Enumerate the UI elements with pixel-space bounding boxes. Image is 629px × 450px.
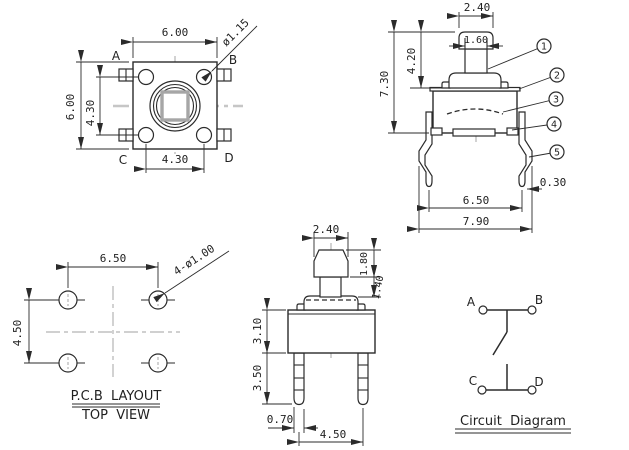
dim-leg-span: 6.50	[429, 190, 522, 212]
dim-text: 1.80	[359, 252, 370, 276]
dim-stem-height: 4.20	[388, 32, 455, 88]
switch-arm	[493, 332, 507, 355]
dim-text: 4.30	[162, 153, 189, 166]
base-plate	[453, 129, 495, 136]
actuator-rings	[150, 81, 200, 131]
right-leg	[519, 112, 532, 187]
dim-text: ø1.15	[219, 16, 252, 49]
terminal-label-d: D	[534, 375, 543, 389]
dim-text: 3.10	[251, 318, 264, 345]
drawing-canvas: 6.00 6.00 4.30 4.30 ø1.15 A	[0, 0, 629, 450]
dim-text: 4.30	[84, 100, 97, 127]
dim-text: 6.50	[100, 252, 127, 265]
right-leg	[358, 353, 368, 405]
side-view: 2.40 1.80 1.40 3.10 3.50	[251, 223, 386, 446]
dim-leg-pitch: 4.50	[299, 408, 363, 446]
dim-text: 1.60	[464, 35, 488, 46]
terminal-label-a: A	[467, 295, 476, 309]
base-block-left	[431, 128, 442, 135]
dim-cap-width: 2.40	[459, 1, 493, 28]
terminal-a-node	[479, 306, 487, 314]
dim-text: 6.50	[463, 194, 490, 207]
dim-text: 4-ø1.00	[171, 242, 217, 278]
pin-label-b: B	[229, 53, 237, 67]
dim-text: 2.40	[313, 223, 340, 236]
terminal-label-b: B	[535, 293, 543, 307]
dim-stem-height: 1.40	[358, 275, 386, 301]
top-view: 6.00 6.00 4.30 4.30 ø1.15 A	[64, 16, 257, 173]
circuit-caption: Circuit Diagram	[460, 414, 566, 429]
circuit-view: A B C D Circuit Diagram	[455, 293, 571, 433]
callout-1: 1	[541, 42, 547, 53]
stem-shaft	[465, 49, 487, 73]
callout-2: 2	[554, 71, 560, 82]
dim-pin-pitch-vertical: 4.30	[84, 77, 139, 135]
leg-segment-ticks	[294, 365, 368, 390]
circuit-wires	[486, 310, 528, 390]
dim-leg-length: 3.50	[251, 353, 292, 404]
leader-hole-diameter: 4-ø1.00	[165, 242, 229, 293]
switch-body	[288, 310, 375, 353]
dim-text: 4.50	[11, 320, 24, 347]
tact-switch-datasheet-drawing: 6.00 6.00 4.30 4.30 ø1.15 A	[0, 0, 629, 450]
dim-text: 0.70	[267, 413, 294, 426]
terminal-label-c: C	[469, 374, 477, 388]
callout-4: 4	[551, 120, 557, 131]
dim-stem-width: 1.60	[449, 35, 503, 46]
dim-text: 2.40	[464, 1, 491, 14]
dim-hole-pitch-horizontal: 6.50	[68, 252, 158, 288]
pin-label-c: C	[119, 153, 127, 167]
terminal-b-node	[528, 306, 536, 314]
pin-label-d: D	[224, 151, 233, 165]
dim-text: 6.00	[64, 94, 77, 121]
dim-leg-width: 0.70	[267, 407, 318, 433]
dim-body-height: 3.10	[251, 310, 286, 353]
callout-3: 3	[553, 95, 559, 106]
pcb-caption-line1: P.C.B LAYOUT	[71, 389, 162, 404]
left-leg	[419, 112, 432, 187]
dim-text: 7.30	[378, 71, 391, 98]
dim-text: 3.50	[251, 365, 264, 392]
dim-leg-thickness: 0.30	[527, 176, 566, 189]
left-leg	[294, 353, 304, 405]
pcb-view: 6.50 4.50 4-ø1.00 P.C.B LAYOUT TOP VIEW	[11, 242, 229, 423]
stem-shaft	[320, 277, 341, 297]
dim-text: 0.30	[540, 176, 567, 189]
pin-label-a: A	[112, 49, 121, 63]
dim-text: 4.50	[320, 428, 347, 441]
callout-balloons: 1 2 3 4 5	[537, 39, 564, 159]
stem-cap	[314, 250, 348, 277]
dim-text: 1.40	[371, 275, 387, 301]
front-view: 2.40 1.60 4.20 7.30 6.50	[378, 1, 566, 233]
actuator-collar	[449, 73, 501, 88]
dim-text: 6.00	[162, 26, 189, 39]
callout-5: 5	[554, 148, 560, 159]
dim-body-width: 6.00	[133, 26, 217, 58]
actuator-collar	[304, 296, 358, 310]
terminal-c-node	[478, 386, 486, 394]
pcb-caption-line2: TOP VIEW	[81, 408, 150, 423]
dim-text: 7.90	[463, 215, 490, 228]
dim-text: 4.20	[405, 48, 418, 75]
dim-cap-height: 1.80	[346, 250, 381, 277]
